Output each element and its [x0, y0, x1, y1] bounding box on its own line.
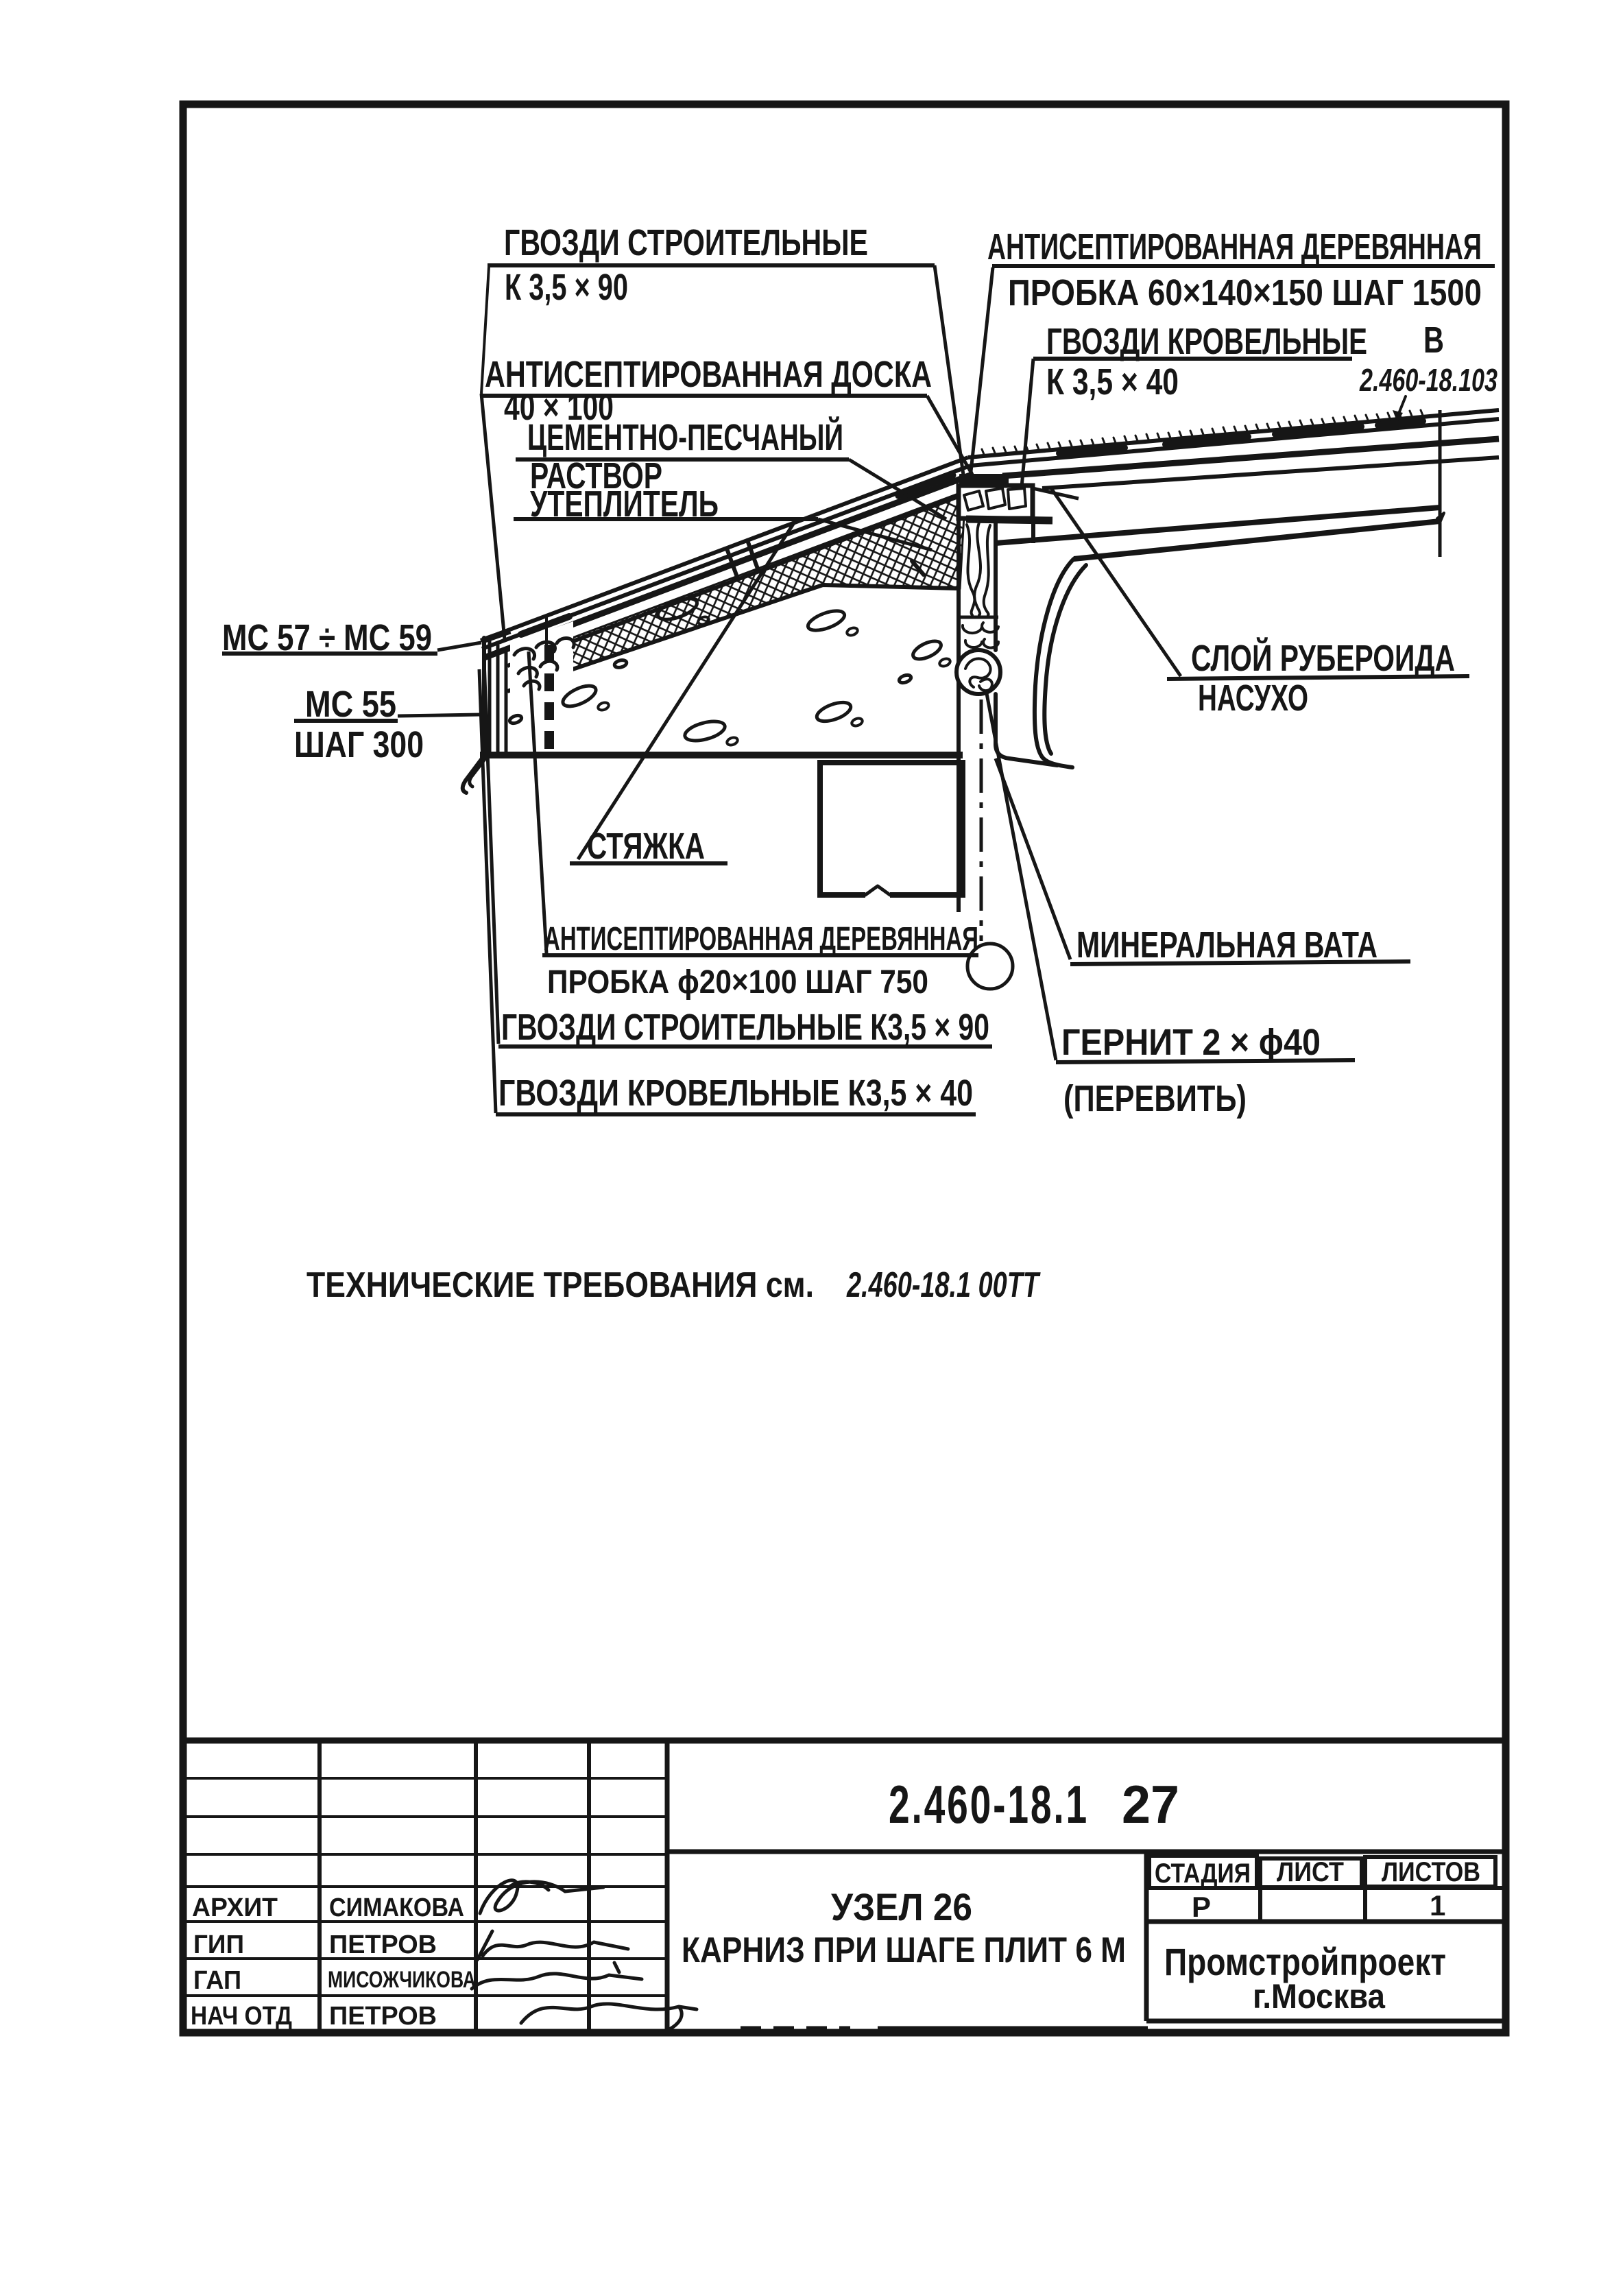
svg-text:МС 55: МС 55 [305, 684, 396, 725]
svg-text:ГЕРНИТ 2 × ϕ40: ГЕРНИТ 2 × ϕ40 [1061, 1022, 1321, 1063]
svg-text:НАСУХО: НАСУХО [1198, 678, 1308, 719]
svg-text:УЗЕЛ 26: УЗЕЛ 26 [831, 1885, 972, 1928]
svg-text:К 3,5 × 90: К 3,5 × 90 [505, 267, 628, 308]
svg-text:АРХИТ: АРХИТ [192, 1893, 278, 1922]
svg-text:ГВОЗДИ КРОВЕЛЬНЫЕ К3,5 × 40: ГВОЗДИ КРОВЕЛЬНЫЕ К3,5 × 40 [498, 1073, 973, 1114]
svg-text:АНТИСЕПТИРОВАННАЯ ДЕРЕВЯННАЯ: АНТИСЕПТИРОВАННАЯ ДЕРЕВЯННАЯ [987, 226, 1482, 267]
svg-text:ПРОБКА 60×140×150 ШАГ 1500: ПРОБКА 60×140×150 ШАГ 1500 [1008, 272, 1482, 313]
svg-text:2.460-18.103: 2.460-18.103 [1359, 362, 1497, 398]
svg-text:ШАГ 300: ШАГ 300 [294, 724, 424, 765]
svg-text:ГВОЗДИ СТРОИТЕЛЬНЫЕ К3,5 × 90: ГВОЗДИ СТРОИТЕЛЬНЫЕ К3,5 × 90 [501, 1007, 989, 1048]
svg-text:ПЕТРОВ: ПЕТРОВ [329, 2002, 437, 2031]
svg-text:1: 1 [1430, 1889, 1445, 1922]
svg-text:ЦЕМЕНТНО-ПЕСЧАНЫЙ: ЦЕМЕНТНО-ПЕСЧАНЫЙ [527, 416, 843, 458]
svg-text:2.460-18.1: 2.460-18.1 [889, 1774, 1089, 1834]
svg-text:СТАДИЯ: СТАДИЯ [1155, 1858, 1251, 1889]
svg-text:К 3,5 × 40: К 3,5 × 40 [1046, 361, 1179, 403]
svg-text:г.Москва: г.Москва [1253, 1977, 1386, 2016]
svg-text:СТЯЖКА: СТЯЖКА [587, 826, 705, 867]
svg-text:АНТИСЕПТИРОВАННАЯ ДЕРЕВЯННАЯ: АНТИСЕПТИРОВАННАЯ ДЕРЕВЯННАЯ [544, 921, 978, 957]
svg-text:ГВОЗДИ СТРОИТЕЛЬНЫЕ: ГВОЗДИ СТРОИТЕЛЬНЫЕ [504, 222, 868, 263]
svg-text:КАРНИЗ ПРИ ШАГЕ ПЛИТ 6 М: КАРНИЗ ПРИ ШАГЕ ПЛИТ 6 М [682, 1930, 1126, 1970]
svg-text:ГАП: ГАП [193, 1966, 241, 1995]
svg-text:ГИП: ГИП [193, 1930, 244, 1959]
svg-text:Р: Р [1192, 1891, 1211, 1923]
svg-text:СИМАКОВА: СИМАКОВА [329, 1893, 464, 1922]
svg-text:ПРОБКА ϕ20×100 ШАГ 750: ПРОБКА ϕ20×100 ШАГ 750 [547, 964, 928, 1001]
svg-text:ЛИСТ: ЛИСТ [1277, 1857, 1344, 1887]
svg-text:ПЕТРОВ: ПЕТРОВ [329, 1930, 437, 1959]
svg-text:СЛОЙ РУБЕРОИДА: СЛОЙ РУБЕРОИДА [1191, 637, 1455, 679]
svg-text:ГВОЗДИ КРОВЕЛЬНЫЕ: ГВОЗДИ КРОВЕЛЬНЫЕ [1046, 321, 1367, 362]
svg-text:МИНЕРАЛЬНАЯ ВАТА: МИНЕРАЛЬНАЯ ВАТА [1076, 924, 1378, 966]
svg-text:НАЧ ОТД: НАЧ ОТД [191, 2002, 292, 2031]
svg-text:В: В [1423, 320, 1444, 361]
svg-text:27: 27 [1122, 1774, 1179, 1834]
svg-text:МС 57 ÷ МС 59: МС 57 ÷ МС 59 [222, 617, 432, 658]
svg-text:ТЕХНИЧЕСКИЕ ТРЕБОВАНИЯ см.: ТЕХНИЧЕСКИЕ ТРЕБОВАНИЯ см. [306, 1265, 814, 1305]
svg-text:(ПЕРЕВИТЬ): (ПЕРЕВИТЬ) [1063, 1078, 1247, 1119]
svg-text:ЛИСТОВ: ЛИСТОВ [1382, 1857, 1480, 1887]
svg-text:МИСОЖЧИКОВА: МИСОЖЧИКОВА [328, 1967, 476, 1993]
svg-text:УТЕПЛИТЕЛЬ: УТЕПЛИТЕЛЬ [530, 483, 719, 525]
svg-text:2.460-18.1 00ТТ: 2.460-18.1 00ТТ [846, 1265, 1041, 1305]
